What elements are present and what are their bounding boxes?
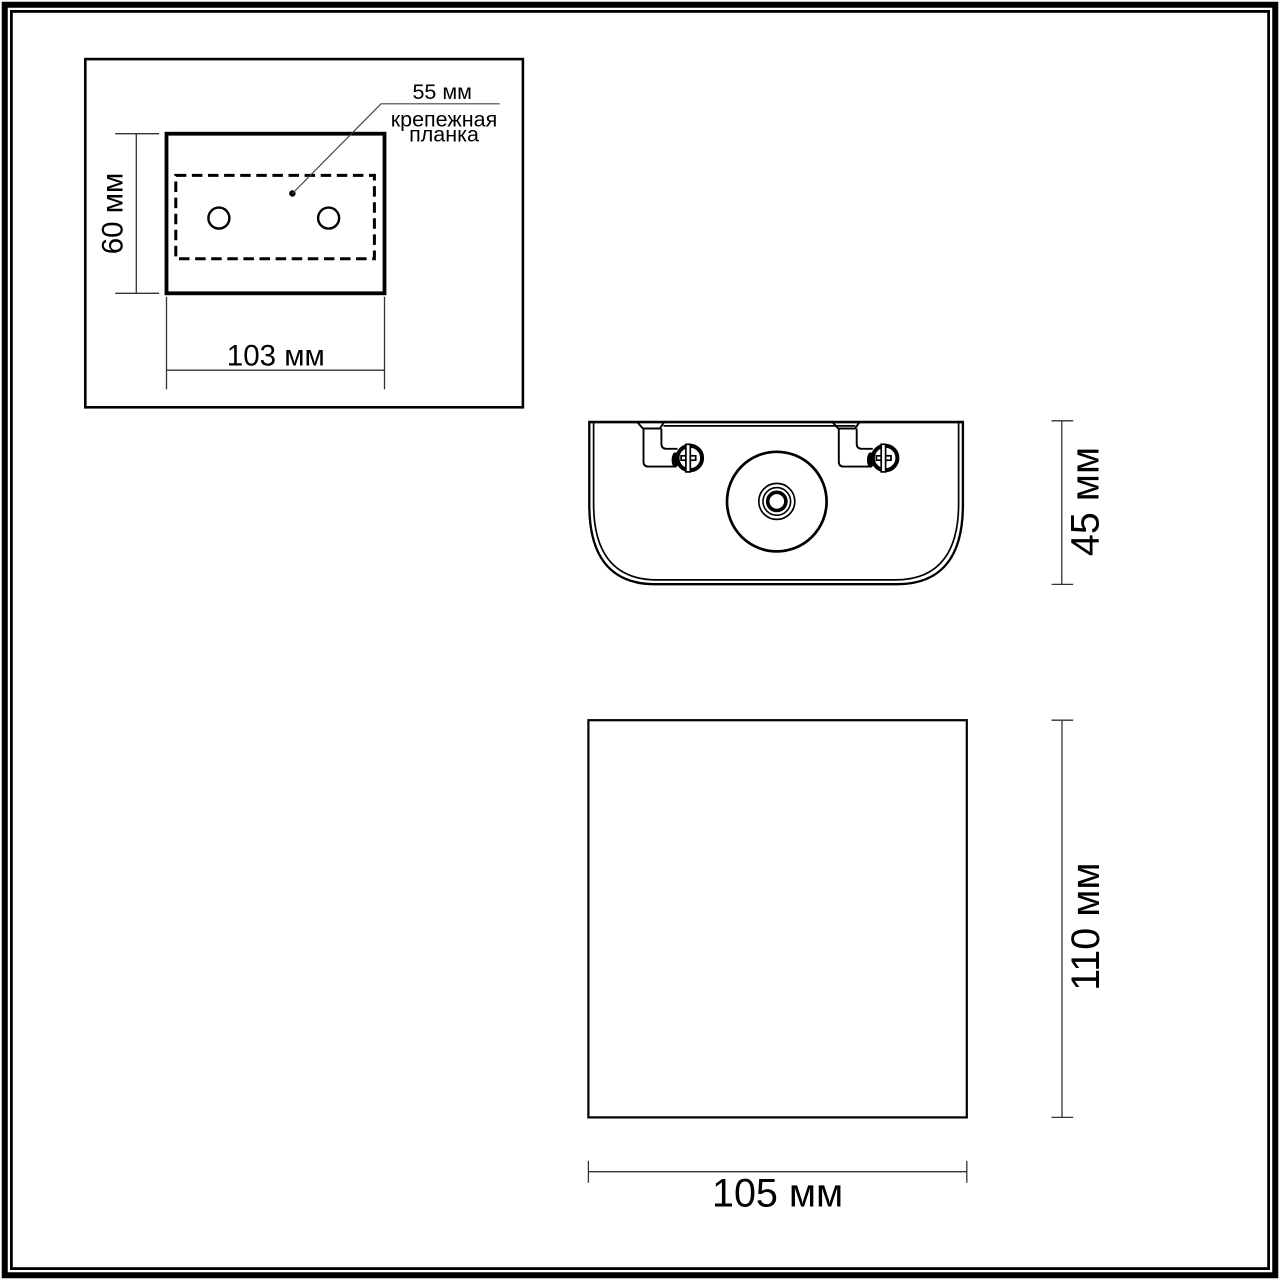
svg-text:105 мм: 105 мм (712, 1172, 843, 1216)
svg-text:110 мм: 110 мм (1064, 862, 1108, 990)
svg-text:103 мм: 103 мм (227, 339, 325, 372)
svg-text:планка: планка (409, 123, 479, 147)
svg-text:60 мм: 60 мм (96, 173, 129, 255)
svg-text:55 мм: 55 мм (412, 80, 471, 104)
svg-text:45 мм: 45 мм (1064, 447, 1108, 556)
